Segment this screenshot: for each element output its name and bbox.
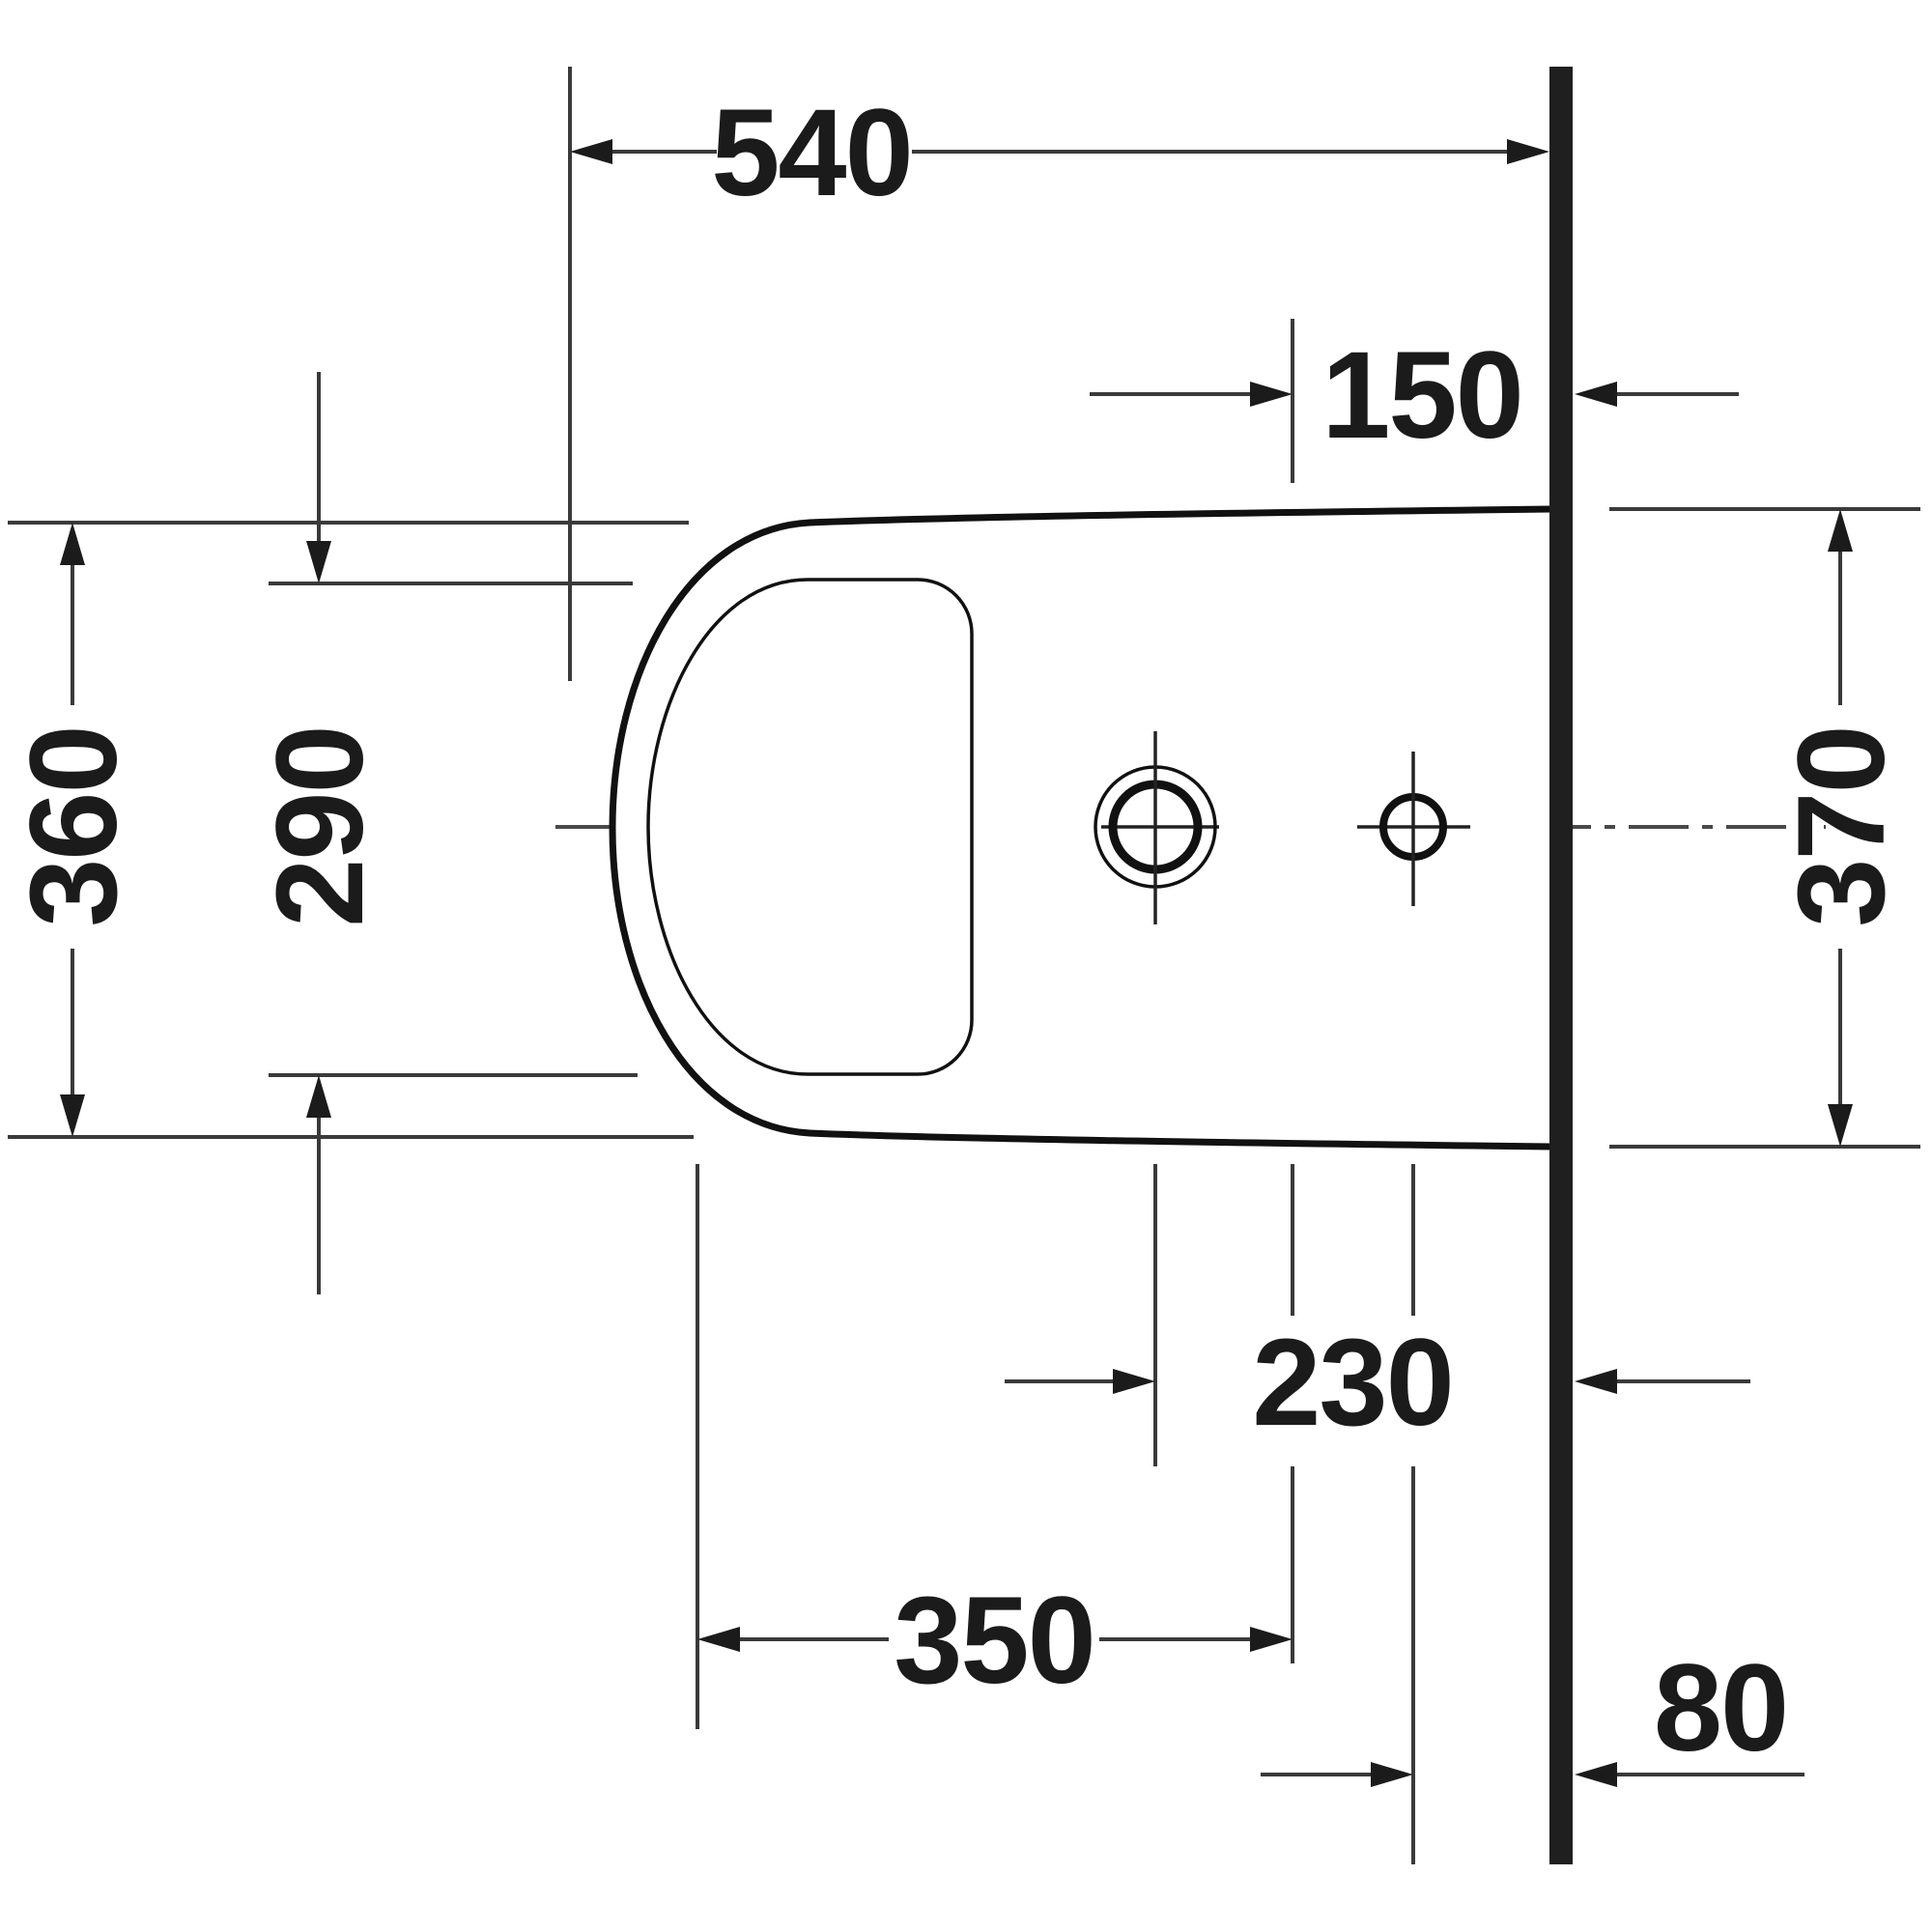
dim-370: 370: [1773, 509, 1911, 1147]
arrow-down-icon: [60, 1094, 85, 1137]
arrow-down-icon: [306, 541, 331, 583]
arrow-up-icon: [306, 1075, 331, 1118]
technical-drawing-canvas: 540 150 360 290 370 230: [0, 0, 1932, 1932]
dim-150-label: 150: [1321, 327, 1522, 465]
bidet-dimension-diagram: 540 150 360 290 370 230: [0, 0, 1932, 1932]
arrow-left-icon: [1575, 1762, 1617, 1787]
dim-540-label: 540: [711, 84, 912, 222]
arrow-up-icon: [60, 523, 85, 565]
dim-230: 230: [1005, 1314, 1750, 1452]
dim-290: 290: [251, 372, 389, 1294]
dim-80: 80: [1261, 1639, 1804, 1787]
dim-230-label: 230: [1252, 1314, 1453, 1452]
dim-80-label: 80: [1654, 1639, 1787, 1777]
arrow-left-icon: [570, 139, 612, 164]
arrow-left-icon: [1575, 1369, 1617, 1394]
arrow-right-icon: [1113, 1369, 1155, 1394]
dim-150: 150: [1090, 327, 1739, 465]
dim-370-label: 370: [1773, 726, 1911, 927]
arrow-right-icon: [1507, 139, 1549, 164]
arrow-left-icon: [697, 1627, 740, 1652]
arrow-up-icon: [1828, 509, 1853, 552]
arrow-right-icon: [1250, 1627, 1293, 1652]
arrow-left-icon: [1575, 382, 1617, 407]
arrow-right-icon: [1250, 382, 1293, 407]
dim-540: 540: [570, 84, 1549, 222]
wall-line: [1549, 67, 1573, 1864]
dim-350-label: 350: [894, 1572, 1094, 1710]
arrow-right-icon: [1371, 1762, 1413, 1787]
dim-350: 350: [697, 1572, 1293, 1710]
arrow-down-icon: [1828, 1104, 1853, 1147]
dim-360: 360: [5, 523, 143, 1137]
dim-290-label: 290: [251, 726, 389, 927]
dim-360-label: 360: [5, 726, 143, 927]
